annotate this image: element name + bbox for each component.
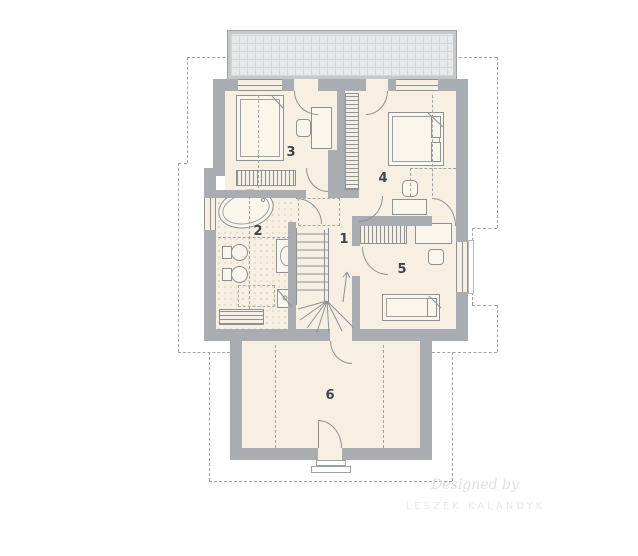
wall [420,329,432,460]
desk [415,223,452,244]
slope-line-dashed [410,168,411,196]
roof-outline-dashed [178,352,230,353]
slope-line-dashed [275,345,276,448]
roof-outline-dashed [472,305,497,306]
bidet-bowl [231,266,248,283]
wall [242,329,330,341]
slope-line-dashed [383,345,384,448]
desk [392,199,427,215]
partition-wall [288,222,296,329]
door-opening [294,79,318,91]
roof-outline-dashed [432,352,497,353]
room-label-6: 6 [323,389,337,403]
partition-wall [337,91,345,190]
door-leaf [318,420,319,448]
single-bed [382,294,440,321]
room-label-3: 3 [284,146,298,160]
watermark-designed-by: Designed by [425,477,525,493]
slope-line-dashed [258,95,259,188]
room-label-1: 1 [337,233,351,247]
roof-outline-dashed [209,481,452,482]
roof-outline-dashed [178,163,179,352]
slope-line-dashed [432,95,433,196]
wall [456,79,468,341]
floor-plan: 1 2 3 4 5 6 Designed by LESZEK KALANDYK [0,0,638,556]
slope-area-dashed [238,285,275,307]
mattress [240,99,280,157]
chair [296,119,311,137]
window [396,79,438,91]
wardrobe [345,93,359,190]
toilet-bowl [231,244,248,261]
room-label-4: 4 [376,172,390,186]
roof-outline-dashed [209,352,210,481]
roof-outline-dashed [497,305,498,352]
window [238,79,282,91]
watermark-author: LESZEK KALANDYK [398,501,553,512]
single-bed [236,95,284,161]
wardrobe [359,224,407,244]
partition-wall [216,190,306,198]
double-bed [388,112,444,166]
slope-area-dashed [298,198,340,226]
partition-wall [352,276,360,330]
roof-outline-dashed [178,163,187,164]
wall [230,329,242,460]
window [204,198,216,230]
exterior-step [311,466,351,473]
roof-outline-dashed [472,228,497,229]
window-sill [468,240,474,294]
roof-outline-dashed [452,352,453,481]
window [456,242,468,292]
room-label-2: 2 [251,225,265,239]
balcony-terrace [228,31,456,79]
pillow [427,298,437,317]
roof-outline-dashed [187,57,188,163]
wall [352,329,420,341]
wall [204,168,216,341]
partition-wall [328,190,359,198]
door-opening [330,329,352,341]
door-opening [366,79,388,91]
roof-outline-dashed [497,57,498,228]
slope-line-dashed [410,168,456,169]
wall [213,79,225,174]
radiator [236,170,296,186]
chair [428,249,444,265]
radiator [219,309,264,325]
room-label-5: 5 [395,263,409,277]
door-opening [318,448,342,460]
